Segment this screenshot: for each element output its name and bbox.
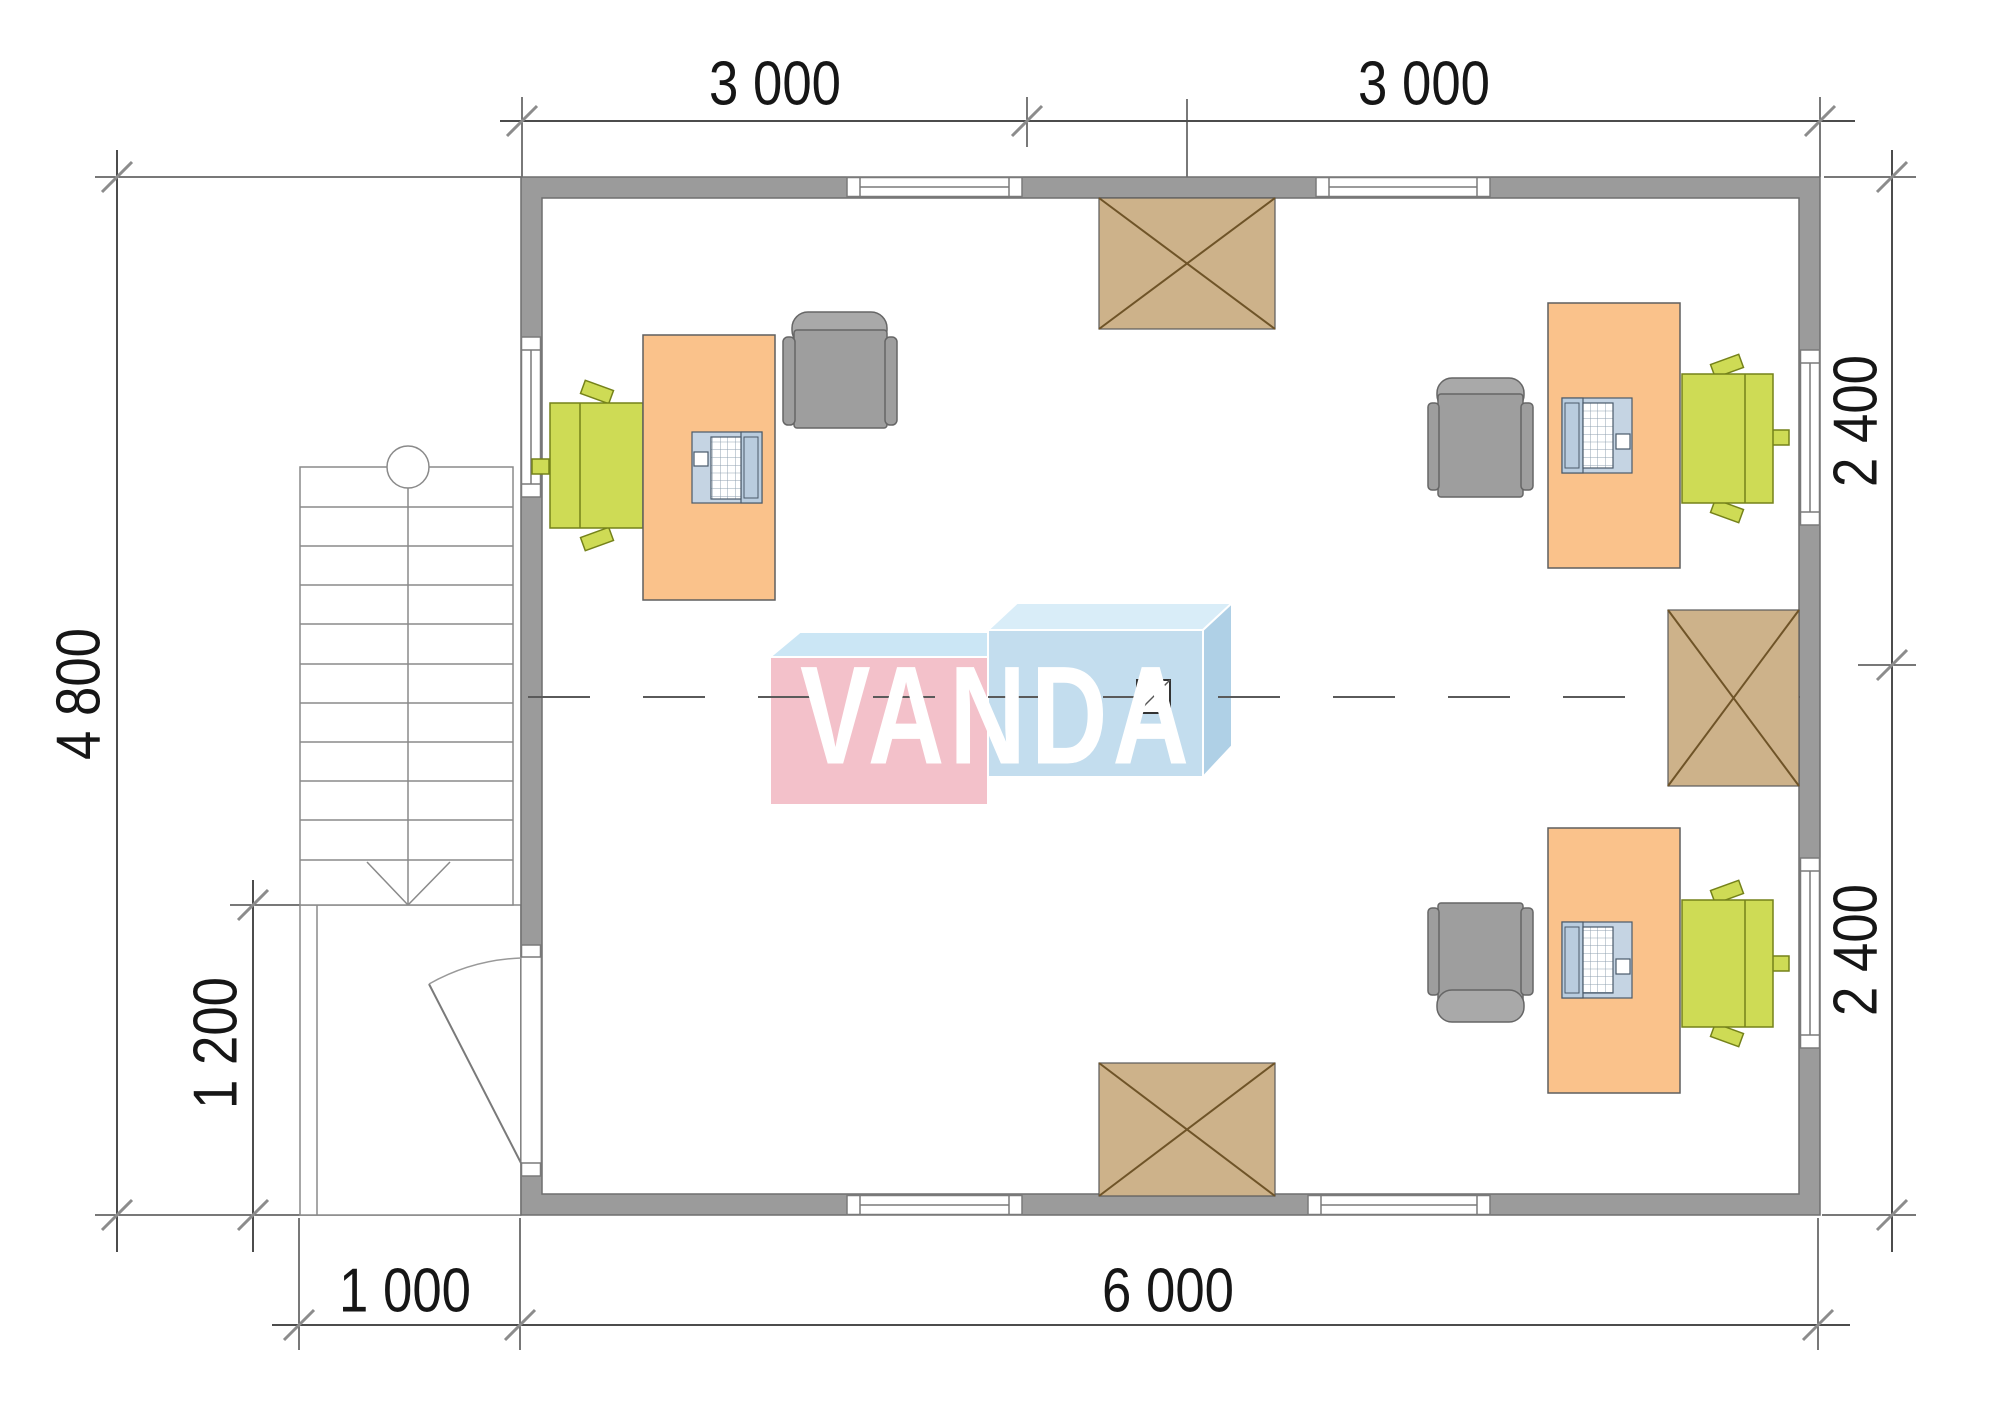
workstation-top-left	[532, 312, 897, 600]
laptop	[1562, 922, 1632, 998]
door-jamb-bottom	[522, 1163, 541, 1176]
dimension-label-right-lower: 2 400	[1821, 884, 1892, 1016]
logo-side-face-right	[1203, 603, 1232, 777]
dimension-label-right-upper: 2 400	[1821, 355, 1892, 487]
window-right-2	[1801, 858, 1820, 1048]
watermark-logo-text: VANDA	[800, 637, 1194, 797]
window-bottom-2	[1308, 1196, 1490, 1215]
hatch-box-right	[1668, 610, 1799, 786]
dimension-label-porch-height: 1 200	[181, 977, 252, 1109]
door-jamb-top	[522, 945, 541, 957]
stair-flight	[300, 467, 513, 905]
office-chair	[532, 380, 643, 550]
workstation-bottom-right	[1428, 828, 1789, 1093]
window-top-1	[847, 178, 1022, 197]
armchair	[1428, 378, 1533, 497]
window-top-2	[1316, 178, 1490, 197]
dimension-label-top-right: 3 000	[1358, 49, 1490, 120]
workstation-top-right	[1428, 303, 1789, 568]
hatch-box-bottom	[1099, 1063, 1275, 1196]
office-chair	[1682, 880, 1789, 1046]
window-bottom-1	[847, 1196, 1022, 1215]
dimension-label-bottom: 6 000	[1102, 1256, 1234, 1327]
logo-top-face-right	[988, 603, 1232, 630]
dimension-label-left: 4 800	[44, 628, 115, 760]
laptop	[692, 432, 762, 503]
hatch-box-top	[1099, 198, 1275, 329]
floor-plan-canvas: 3 000 3 000 2 400 2 400 4 800 1 200 1 00…	[0, 0, 2000, 1410]
stair-newel-post	[387, 446, 429, 488]
armchair	[1428, 903, 1533, 1022]
dimension-label-porch-width: 1 000	[339, 1256, 471, 1327]
office-chair	[1682, 354, 1789, 522]
window-right-1	[1801, 350, 1820, 525]
dimension-label-top-left: 3 000	[709, 49, 841, 120]
porch	[300, 905, 521, 1215]
armchair	[783, 312, 897, 428]
laptop	[1562, 398, 1632, 473]
